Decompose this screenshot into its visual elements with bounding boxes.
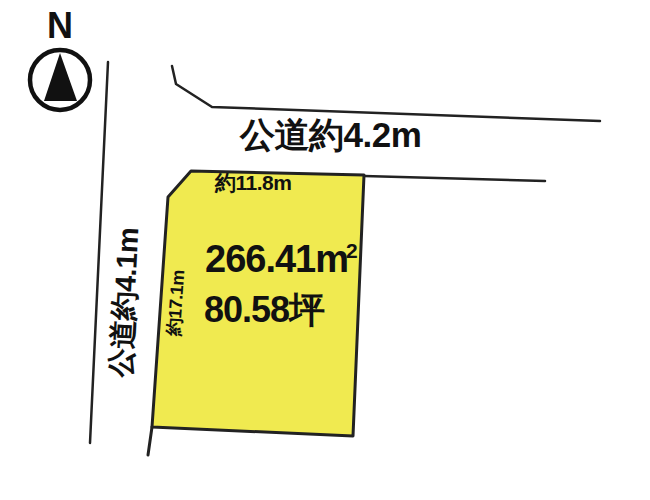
top-road-label: 公道約4.2m (240, 117, 421, 152)
parcel-area-unit-exponent: 2 (346, 239, 357, 262)
land-plot-diagram: N 公道約4.2m 公道約4.1m 約11.8m 約17.1m 266.41m2… (0, 0, 650, 500)
top-road-line (172, 66, 600, 121)
compass-north-label: N (44, 8, 76, 44)
parcel-area-unit: m (315, 238, 348, 280)
right-road-edge-line (364, 176, 545, 181)
parcel-area-sqm: 266.41m2 (205, 240, 357, 278)
parcel-area-tsubo: 80.58坪 (204, 292, 324, 328)
parcel-area-value: 266.41 (205, 238, 315, 280)
left-road-line (90, 62, 108, 443)
parcel-top-edge-label: 約11.8m (215, 172, 291, 193)
left-boundary-extension-line (148, 427, 152, 455)
